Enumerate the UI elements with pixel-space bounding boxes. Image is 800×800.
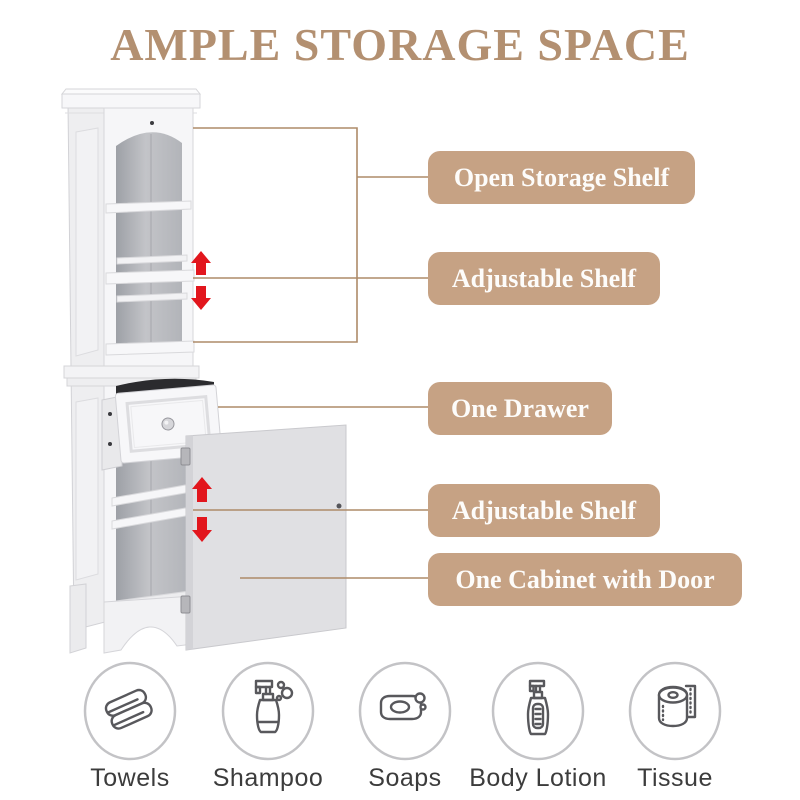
feature-item-shampoo: Shampoo [193, 660, 343, 793]
callout-bracket-line [193, 128, 357, 342]
feature-item-tissue: Tissue [600, 660, 750, 793]
door-knob [337, 504, 342, 509]
callout-lines [193, 128, 428, 578]
callout-text: One Drawer [451, 394, 589, 424]
callout-text: Open Storage Shelf [454, 163, 669, 193]
feature-label: Soaps [330, 764, 480, 793]
cabinet-body [62, 89, 200, 653]
tissue-roll-icon [627, 660, 723, 762]
shampoo-bottle-icon [220, 660, 316, 762]
feature-item-soaps: Soaps [330, 660, 480, 793]
feature-item-body-lotion: Body Lotion [463, 660, 613, 793]
callout-text: Adjustable Shelf [452, 264, 636, 294]
callout-text: Adjustable Shelf [452, 496, 636, 526]
lotion-bottle-icon [490, 660, 586, 762]
soap-bar-icon [357, 660, 453, 762]
feature-label: Body Lotion [463, 764, 613, 793]
callout-label-one-cabinet-with-door: One Cabinet with Door [428, 553, 742, 606]
storage-infographic: AMPLE STORAGE SPACE [0, 0, 800, 800]
door-hinge-icon [181, 596, 190, 613]
feature-label: Shampoo [193, 764, 343, 793]
towels-icon [82, 660, 178, 762]
drawer-knob [161, 417, 174, 430]
callout-label-open-storage-shelf: Open Storage Shelf [428, 151, 695, 204]
feature-label: Tissue [600, 764, 750, 793]
feature-label: Towels [55, 764, 205, 793]
shelf-down-arrow-icon [191, 286, 211, 310]
feature-item-towels: Towels [55, 660, 205, 793]
callout-label-adjustable-shelf-bottom: Adjustable Shelf [428, 484, 660, 537]
callout-label-one-drawer: One Drawer [428, 382, 612, 435]
callout-label-adjustable-shelf-top: Adjustable Shelf [428, 252, 660, 305]
door-hinge-icon [181, 448, 190, 465]
callout-text: One Cabinet with Door [455, 565, 714, 595]
